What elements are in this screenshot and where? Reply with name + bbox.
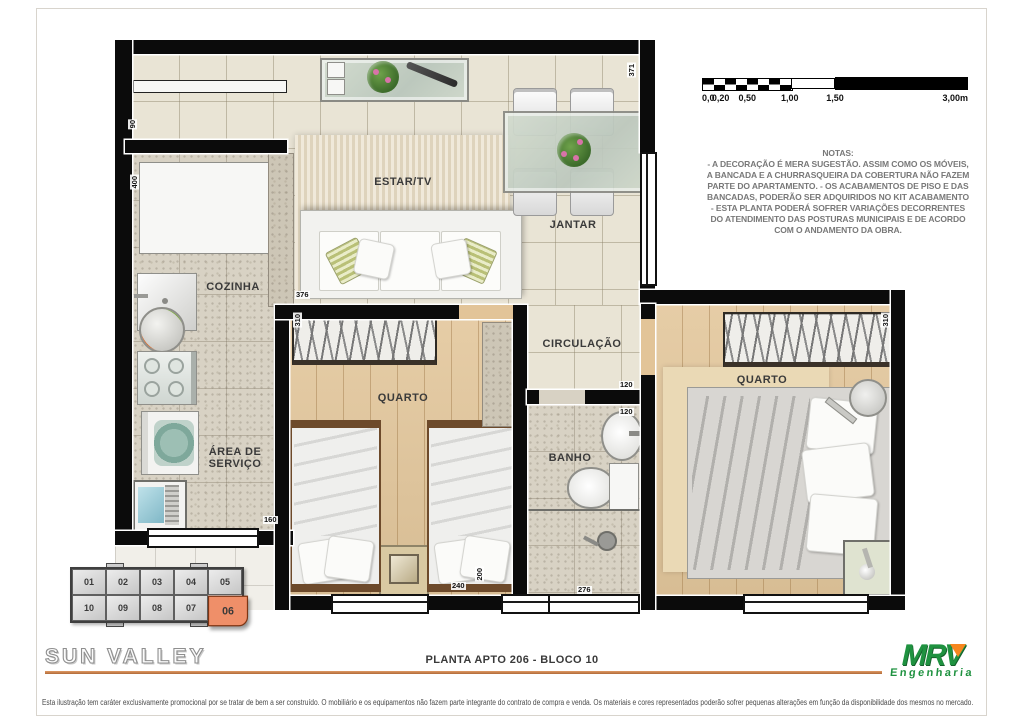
notes-line: A BANCADA E A CHURRASQUEIRA DA COBERTURA…	[698, 170, 978, 181]
unit-cell-06: 06	[208, 596, 248, 627]
flower	[573, 155, 579, 161]
burner	[144, 358, 160, 374]
scale-bar: 0,00,200,501,001,503,00m	[702, 72, 968, 108]
room-label-banho: BANHO	[549, 452, 592, 464]
bathroom-window-b	[548, 594, 640, 614]
unit-cell-05: 05	[208, 569, 242, 595]
notes-line: - ESTA PLANTA PODERÁ SOFRER VARIAÇÕES DE…	[698, 203, 978, 214]
granite-column	[482, 322, 515, 427]
footer-disclaimer: Esta ilustração tem caráter exclusivamen…	[42, 698, 855, 707]
unit-cell-03: 03	[140, 569, 174, 595]
throw-pillow	[353, 238, 396, 281]
unit-key: 01020304051009080706	[70, 567, 252, 623]
footer-rule	[45, 671, 980, 674]
dining-centerpiece-plant	[557, 133, 591, 167]
scale-label: 0,20	[712, 93, 730, 103]
bedroom1-wardrobe	[292, 312, 437, 365]
room-label-quarto2: QUARTO	[737, 374, 787, 386]
wall-bedroom2-top	[640, 290, 905, 304]
stove-cooktop	[137, 351, 197, 405]
room-label-circulacao: CIRCULAÇÃO	[543, 338, 622, 350]
tank-water	[138, 487, 164, 523]
dim-310-right: 310	[881, 313, 890, 328]
flower	[561, 151, 567, 157]
dim-160: 160	[263, 516, 278, 524]
burner	[168, 381, 184, 397]
wall-top	[115, 40, 655, 54]
floor-plan-page: ESTAR/TV JANTAR COZINHA ÁREA DE SERVIÇO …	[0, 0, 1024, 724]
kitchen-shelf	[133, 80, 287, 93]
fruit-bowl	[139, 307, 185, 353]
toilet-tank	[609, 463, 639, 511]
console-tray	[327, 79, 345, 95]
dim-400: 400	[130, 175, 139, 190]
sink-faucet	[134, 294, 148, 298]
notes-line: - A DECORAÇÃO É MERA SUGESTÃO. ASSIM COM…	[698, 159, 978, 170]
wall-bedroom1-left	[275, 305, 289, 610]
bathroom-door-opening	[539, 390, 585, 404]
twin-bed-right	[427, 420, 517, 592]
bed-footboard	[292, 420, 379, 428]
scale-segment-black	[835, 77, 968, 90]
scale-label: 1,50	[826, 93, 844, 103]
unit-cell-10: 10	[72, 595, 106, 621]
wall-bedroom1-right	[513, 305, 527, 610]
flower	[373, 69, 379, 75]
sink-faucet	[629, 431, 641, 436]
sink-drain	[162, 298, 168, 304]
room-label-quarto1: QUARTO	[378, 392, 428, 404]
plan-title: PLANTA APTO 206 - BLOCO 10	[0, 654, 1024, 666]
notes-line: BANCADAS, PODERÃO SER ADQUIRIDOS NO KIT …	[698, 192, 978, 203]
kitchen-counter-divider	[268, 153, 294, 307]
wall-right-upper	[640, 40, 655, 152]
unit-grid: 01020304051009080706	[70, 567, 244, 623]
dim-240: 240	[451, 582, 466, 590]
bedroom1-window	[331, 594, 429, 614]
dim-200: 200	[475, 567, 484, 582]
laundry-tank	[133, 480, 187, 533]
wall-kitchen-top	[125, 140, 287, 153]
mrv-logo-subtitle: Engenharia	[881, 667, 982, 679]
dining-window	[640, 152, 657, 286]
flower	[385, 77, 391, 83]
notes-line: PARTE DO APARTAMENTO. - OS ACABAMENTOS D…	[698, 181, 978, 192]
bedroom1-nightstand	[379, 545, 429, 596]
bed-blanket	[294, 428, 377, 536]
bedroom2-door-opening	[641, 319, 655, 375]
bathroom-sink	[601, 411, 643, 461]
bed-pillow	[459, 535, 511, 584]
room-label-area-servico: ÁREA DE SERVIÇO	[202, 446, 268, 470]
burner	[168, 358, 184, 374]
dim-120-a: 120	[619, 381, 634, 389]
bed-headboard	[292, 584, 379, 592]
washer-door	[154, 420, 194, 466]
scale-segment-white	[791, 78, 835, 89]
wall-bedroom2-right	[891, 290, 905, 610]
apartment-floor-plan: ESTAR/TV JANTAR COZINHA ÁREA DE SERVIÇO …	[115, 35, 907, 617]
bedroom2-window	[743, 594, 869, 614]
bedroom1-door-opening	[459, 305, 513, 319]
scale-label: 3,00m	[942, 93, 968, 103]
bedroom2-nightstand	[843, 540, 895, 596]
bed-pillow	[323, 535, 374, 583]
throw-pillow	[430, 238, 472, 280]
twin-bed-left	[290, 420, 381, 592]
bed-headboard	[429, 584, 515, 592]
reading-lamp	[849, 379, 887, 417]
unit-cell-08: 08	[140, 595, 174, 621]
dim-90: 90	[128, 119, 137, 129]
unit-cell-02: 02	[106, 569, 140, 595]
sofa	[300, 210, 522, 299]
fridge	[139, 162, 275, 254]
bed-blanket	[431, 428, 513, 536]
unit-cell-01: 01	[72, 569, 106, 595]
dim-276: 276	[577, 586, 592, 594]
shower-divider	[527, 509, 641, 511]
notes-lines: - A DECORAÇÃO É MERA SUGESTÃO. ASSIM COM…	[698, 159, 978, 236]
dim-371: 371	[627, 63, 636, 78]
washing-machine	[141, 411, 199, 475]
bed-duvet	[692, 396, 810, 570]
unit-cell-07: 07	[174, 595, 208, 621]
shower-head	[597, 531, 617, 551]
nightstand-box	[389, 554, 419, 584]
wall-left	[115, 40, 132, 545]
dim-120-b: 120	[619, 408, 634, 416]
flower	[577, 139, 583, 145]
room-label-jantar: JANTAR	[550, 219, 597, 231]
dim-310-left: 310	[293, 313, 302, 328]
notes-block: NOTAS: - A DECORAÇÃO É MERA SUGESTÃO. AS…	[698, 148, 978, 236]
notes-line: DO ATENDIMENTO DAS POSTURAS MUNICIPAIS E…	[698, 214, 978, 225]
unit-cell-09: 09	[106, 595, 140, 621]
dim-376: 376	[295, 291, 310, 299]
room-label-estar: ESTAR/TV	[374, 176, 432, 188]
notes-title: NOTAS:	[698, 148, 978, 159]
scale-labels: 0,00,200,501,001,503,00m	[702, 93, 968, 105]
bathroom-window-a	[501, 594, 550, 614]
console-plant	[367, 61, 399, 93]
tank-washboard	[165, 485, 179, 525]
toilet-bowl	[567, 467, 615, 509]
room-label-cozinha: COZINHA	[206, 281, 260, 293]
console-tray	[327, 62, 345, 78]
mrv-logo: MRV Engenharia	[882, 642, 982, 694]
unit-cell-04: 04	[174, 569, 208, 595]
scale-label: 0,50	[738, 93, 756, 103]
mrv-logo-orange-triangle	[950, 644, 966, 657]
service-window	[147, 528, 259, 548]
burner	[144, 381, 160, 397]
bedroom2-wardrobe	[723, 312, 892, 367]
notes-line: COM O ANDAMENTO DA OBRA.	[698, 225, 978, 236]
scale-segment-checker	[702, 78, 793, 91]
scale-label: 1,00	[781, 93, 799, 103]
